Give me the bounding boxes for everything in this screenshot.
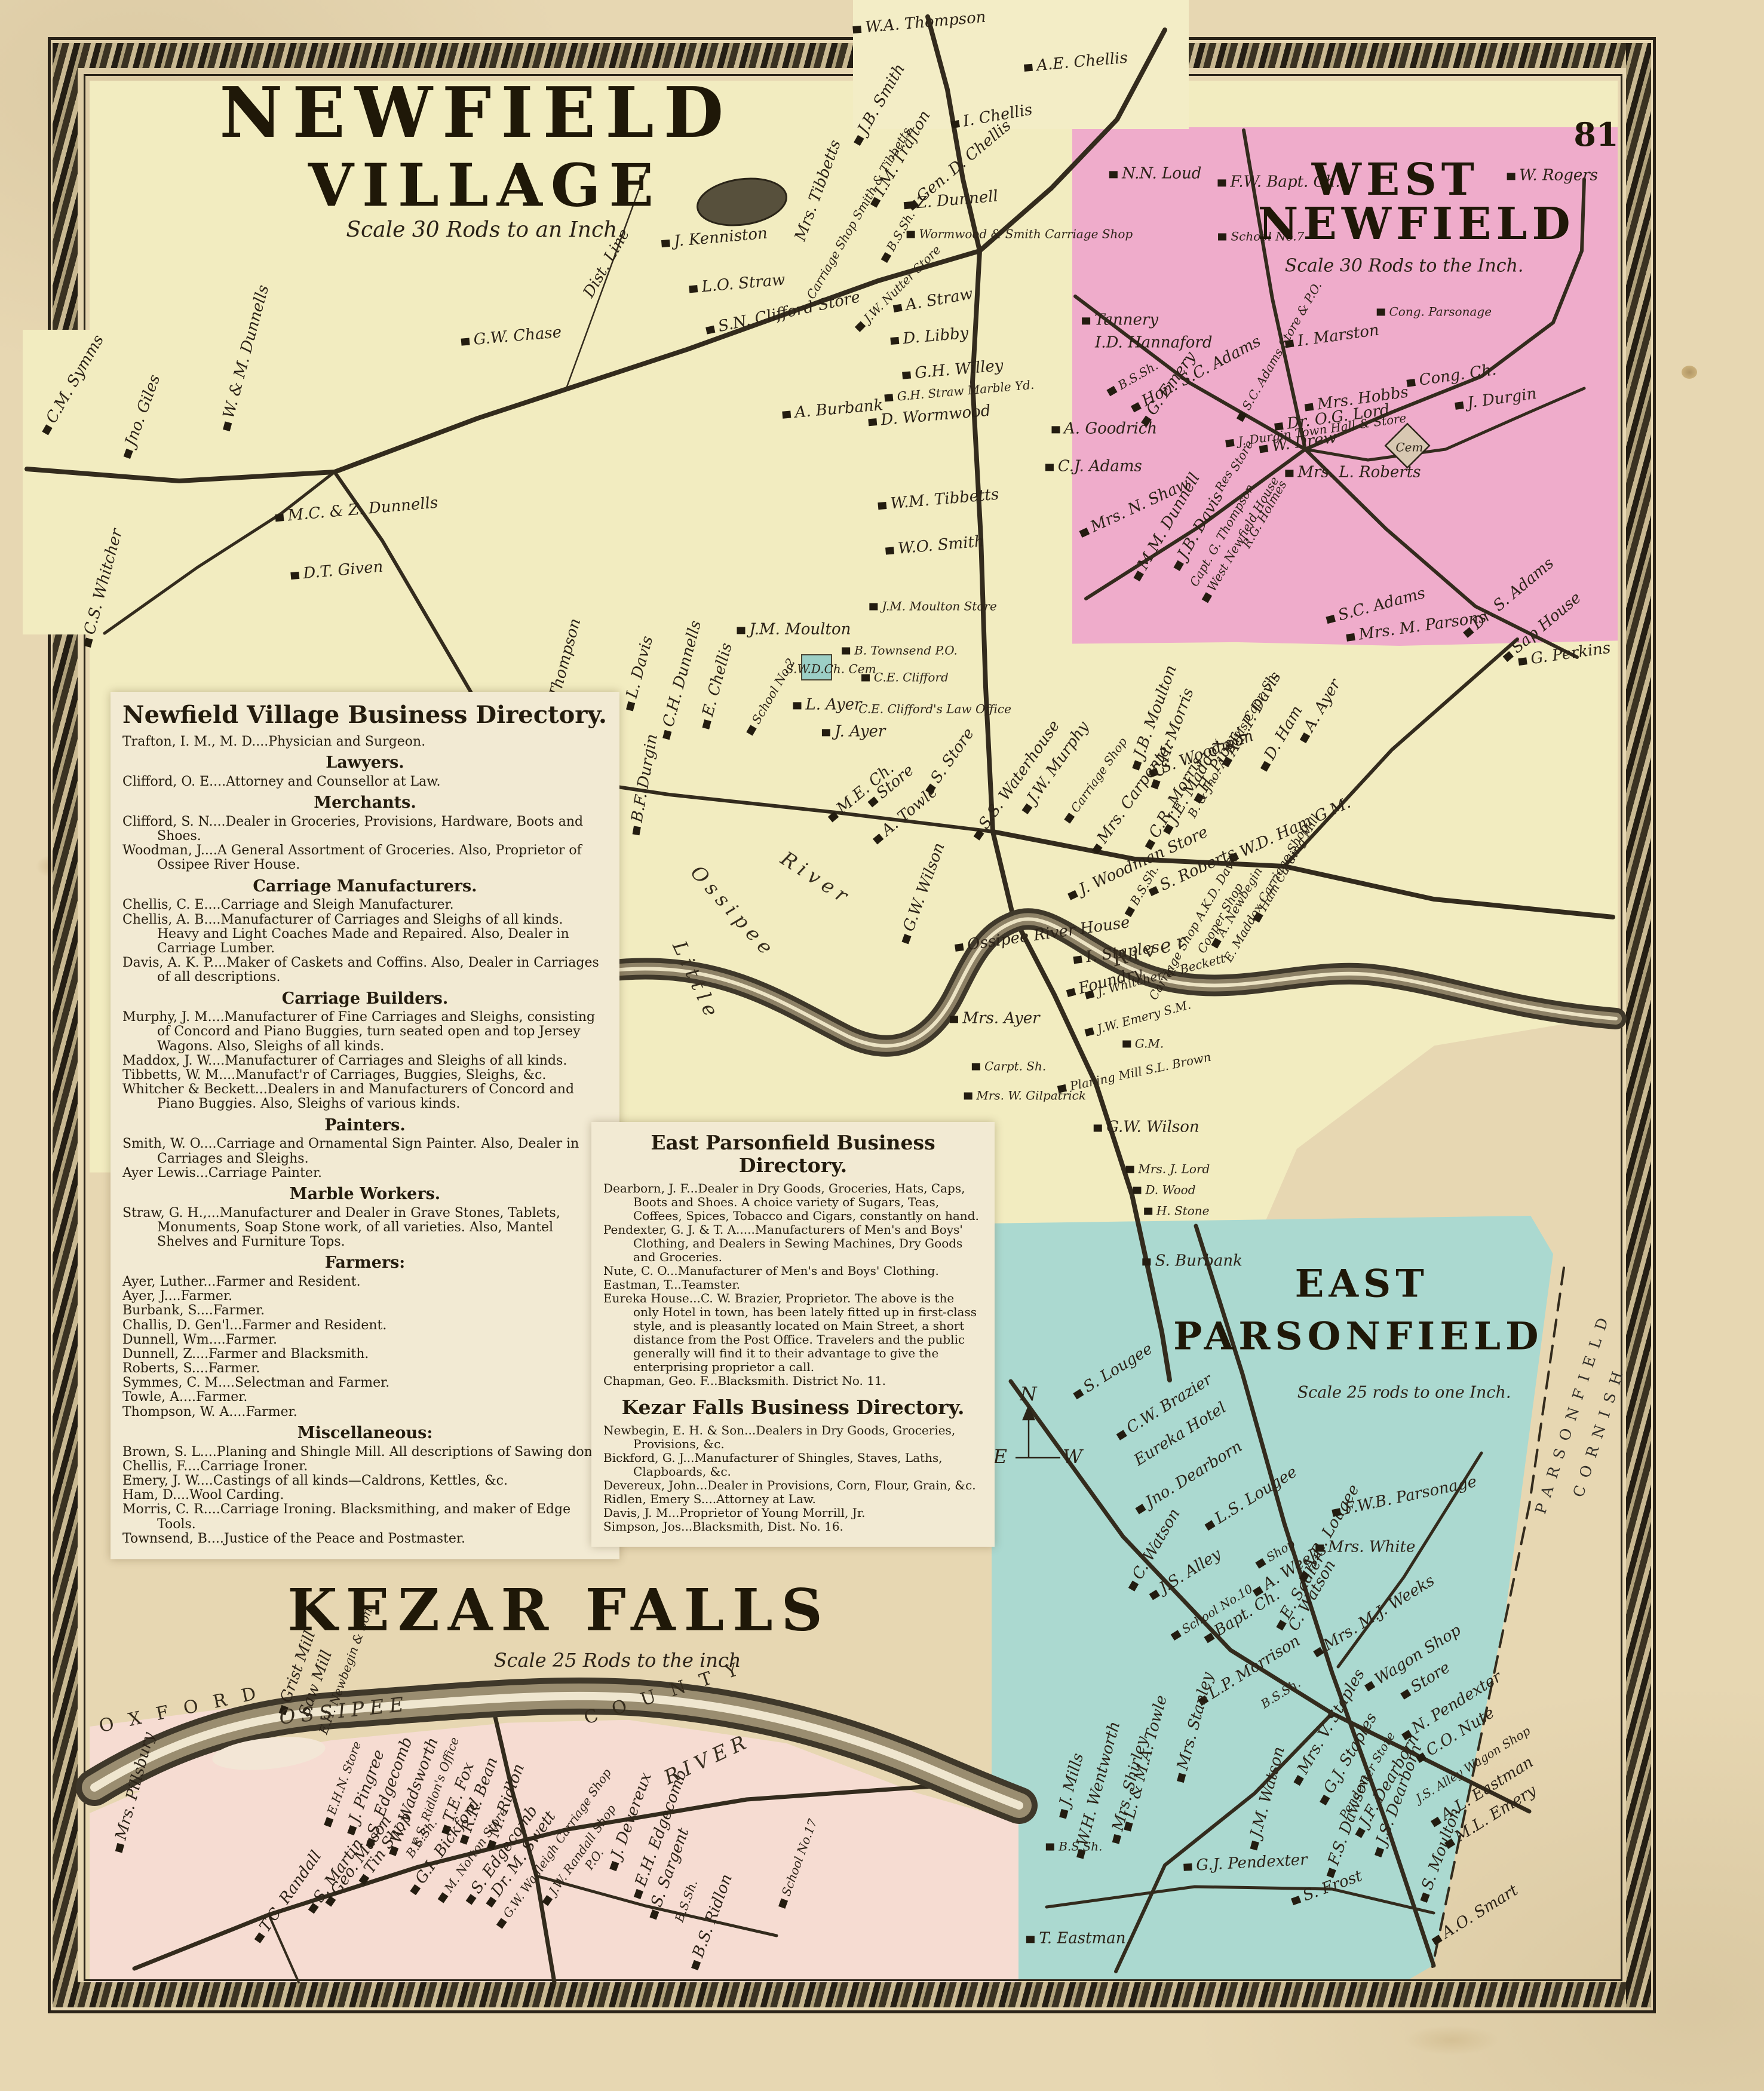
newfield-village-scale: Scale 30 Rods to an Inch. — [346, 218, 624, 243]
directory-entry: Whitcher & Beckett...Dealers in and Manu… — [122, 1083, 608, 1111]
directory-entry: Nute, C. O...Manufacturer of Men's and B… — [603, 1264, 983, 1278]
newfield-village-title-2: VILLAGE — [308, 152, 662, 220]
directory-entry: Straw, G. H.,...Manufacturer and Dealer … — [122, 1206, 608, 1250]
map-label: L.S. Lougee — [1201, 1464, 1300, 1534]
directory-entry: Symmes, C. M....Selectman and Farmer. — [122, 1376, 608, 1390]
map-label: W — [1063, 1448, 1082, 1468]
atlas-page: W.A. ThompsonA.E. ChellisJ.B. SmithI. Ch… — [0, 0, 1764, 2091]
directory-entry: Morris, C. R....Carriage Ironing. Blacks… — [122, 1503, 608, 1531]
map-label: G.J. Pendexter — [1183, 1851, 1308, 1874]
newfield-village-business-directory: Newfield Village Business Directory.Traf… — [111, 692, 619, 1559]
directory-entry: Eastman, T...Teamster. — [603, 1278, 983, 1292]
directory-section-heading: Painters. — [122, 1115, 608, 1136]
directory-entry: Towle, A....Farmer. — [122, 1390, 608, 1405]
east-parsonfield-business-directory: East Parsonfield Business Directory.Dear… — [591, 1122, 995, 1547]
directory-entry: Clifford, S. N....Dealer in Groceries, P… — [122, 815, 608, 844]
map-label: B.S.Sh. — [1046, 1840, 1102, 1853]
directory-entry: Chellis, C. E....Carriage and Sleigh Man… — [122, 898, 608, 912]
directory-entry: Townsend, B....Justice of the Peace and … — [122, 1532, 608, 1546]
directory-entry: Simpson, Jos...Blacksmith, Dist. No. 16. — [603, 1520, 983, 1534]
directory-entry: Newbegin, E. H. & Son...Dealers in Dry G… — [603, 1424, 983, 1451]
directory-entry: Davis, A. K. P....Maker of Caskets and C… — [122, 956, 608, 985]
directory-entry: Ridlen, Emery S....Attorney at Law. — [603, 1492, 983, 1506]
directory-entry: Trafton, I. M., M. D....Physician and Su… — [122, 735, 608, 749]
directory-title: Kezar Falls Business Directory. — [603, 1396, 983, 1419]
directory-section-heading: Carriage Manufacturers. — [122, 876, 608, 897]
directory-title: East Parsonfield Business Directory. — [603, 1132, 983, 1177]
directory-entry: Dunnell, Wm....Farmer. — [122, 1333, 608, 1347]
directory-entry: Davis, J. M...Proprietor of Young Morril… — [603, 1506, 983, 1520]
map-label: T. Eastman — [1026, 1930, 1125, 1946]
kezar-falls-title: KEZAR FALLS — [287, 1577, 831, 1644]
map-label: E — [993, 1448, 1007, 1468]
directory-entry: Bickford, G. J...Manufacturer of Shingle… — [603, 1451, 983, 1479]
map-label: J.M. Watson — [1245, 1745, 1288, 1851]
east-parsonfield-scale: Scale 25 rods to one Inch. — [1297, 1384, 1511, 1402]
east-parsonfield-title: EAST — [1295, 1262, 1429, 1307]
directory-entry: Ayer, J....Farmer. — [122, 1289, 608, 1304]
map-label: S. Lougee — [1070, 1341, 1156, 1402]
map-label: Mrs. White — [1315, 1539, 1416, 1555]
directory-entry: Devereux, John...Dealer in Provisions, C… — [603, 1479, 983, 1492]
west-newfield-scale: Scale 30 Rods to the Inch. — [1285, 255, 1524, 276]
east-parsonfield-title-2: PARSONFIELD — [1173, 1314, 1543, 1359]
page-number: 81 — [1573, 115, 1618, 154]
newfield-village-title: NEWFIELD — [219, 72, 733, 154]
directory-entry: Clifford, O. E....Attorney and Counsello… — [122, 775, 608, 789]
directory-entry: Ayer, Luther...Farmer and Resident. — [122, 1275, 608, 1289]
directory-section-heading: Miscellaneous: — [122, 1423, 608, 1443]
directory-entry: Ham, D....Wool Carding. — [122, 1488, 608, 1503]
directory-entry: Challis, D. Gen'l...Farmer and Resident. — [122, 1319, 608, 1333]
directory-entry: Burbank, S....Farmer. — [122, 1304, 608, 1318]
map-label: Mrs. Stanley — [1172, 1670, 1217, 1783]
directory-entry: Thompson, W. A....Farmer. — [122, 1405, 608, 1419]
map-label: N — [1020, 1385, 1037, 1405]
directory-entry: Roberts, S....Farmer. — [122, 1362, 608, 1376]
directory-section-heading: Farmers: — [122, 1253, 608, 1273]
directory-entry: Brown, S. L....Planing and Shingle Mill.… — [122, 1445, 608, 1460]
directory-entry: Ayer Lewis...Carriage Painter. — [122, 1166, 608, 1181]
directory-entry: Dunnell, Z....Farmer and Blacksmith. — [122, 1347, 608, 1362]
directory-entry: Pendexter, G. J. & T. A.....Manufacturer… — [603, 1223, 983, 1264]
directory-entry: Eureka House...C. W. Brazier, Proprietor… — [603, 1292, 983, 1374]
directory-entry: Smith, W. O....Carriage and Ornamental S… — [122, 1137, 608, 1166]
directory-entry: Chapman, Geo. F...Blacksmith. District N… — [603, 1374, 983, 1388]
directory-entry: Chellis, F....Carriage Ironer. — [122, 1460, 608, 1474]
directory-entry: Dearborn, J. F...Dealer in Dry Goods, Gr… — [603, 1182, 983, 1223]
map-label: C.W. Brazier — [1113, 1371, 1215, 1443]
west-newfield-title-2: NEWFIELD — [1258, 198, 1575, 250]
directory-title: Newfield Village Business Directory. — [122, 701, 608, 729]
directory-entry: Murphy, J. M....Manufacturer of Fine Car… — [122, 1010, 608, 1054]
kezar-falls-scale: Scale 25 Rods to the inch — [494, 1649, 741, 1672]
directory-spacer — [603, 1388, 983, 1396]
directory-entry: Emery, J. W....Castings of all kinds—Cal… — [122, 1474, 608, 1488]
directory-entry: Chellis, A. B....Manufacturer of Carriag… — [122, 913, 608, 956]
map-label: A.O. Smart — [1428, 1882, 1521, 1949]
directory-section-heading: Lawyers. — [122, 753, 608, 773]
directory-section-heading: Carriage Builders. — [122, 989, 608, 1009]
directory-entry: Tibbetts, W. M....Manufact'r of Carriage… — [122, 1068, 608, 1083]
directory-section-heading: Marble Workers. — [122, 1184, 608, 1204]
map-label: B.S.Sh. — [1259, 1677, 1302, 1711]
directory-entry: Woodman, J....A General Assortment of Gr… — [122, 844, 608, 872]
directory-section-heading: Merchants. — [122, 793, 608, 813]
directory-entry: Maddox, J. W....Manufacturer of Carriage… — [122, 1054, 608, 1068]
